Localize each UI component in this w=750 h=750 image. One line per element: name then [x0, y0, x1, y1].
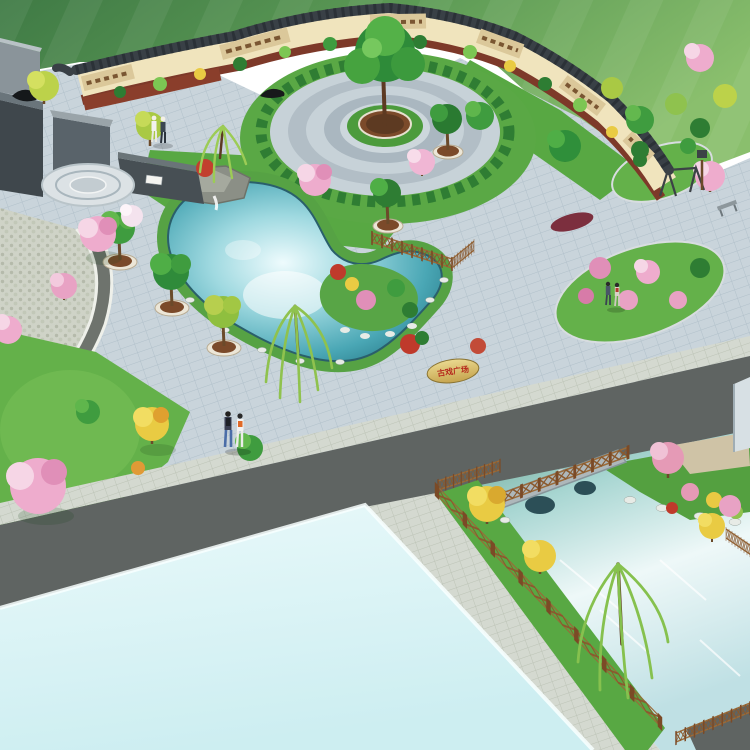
green-tree [713, 84, 737, 108]
park-scene: 古戏广场 [0, 0, 750, 750]
blossom-tree [719, 495, 741, 517]
building-corner [734, 377, 750, 452]
green-tree [665, 93, 687, 115]
red-maple-shrub [196, 159, 214, 177]
mosaic-circle [42, 164, 134, 206]
green-tree [690, 118, 710, 138]
autumn-shrub [131, 461, 145, 475]
feature-wall-plaque [146, 175, 163, 185]
blossom-tree [669, 291, 687, 309]
green-tree [601, 77, 623, 99]
landscape-rendering: 古戏广场 [0, 0, 750, 750]
